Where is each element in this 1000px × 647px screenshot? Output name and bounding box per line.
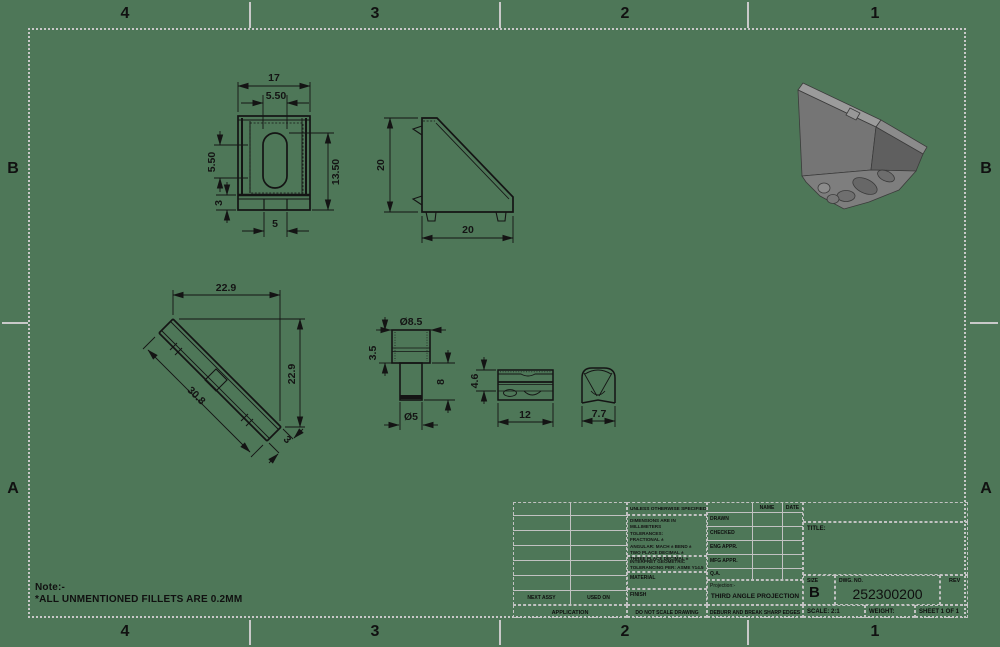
- block-view: 4.6 12: [469, 357, 553, 427]
- rev-cell: REV: [940, 575, 968, 605]
- do-not-scale-label: DO NOT SCALE DRAWING: [628, 610, 706, 616]
- tolerance-cell: DIMENSIONS ARE IN MILLIMETERS TOLERANCES…: [627, 515, 707, 556]
- sheet-cell: SHEET 1 OF 1: [915, 605, 968, 618]
- application-label: APPLICATION: [514, 610, 626, 616]
- interpret-cell: INTERPRET GEOMETRIC TOLERANCING PER: ASM…: [627, 556, 707, 572]
- note-line-1: Note:-: [35, 582, 242, 594]
- svg-text:30.8: 30.8: [185, 384, 208, 407]
- svg-text:3.5: 3.5: [367, 346, 379, 361]
- name-column-header: NAME: [752, 505, 782, 511]
- svg-text:Ø5: Ø5: [404, 411, 418, 423]
- dim-front-height: [289, 133, 334, 210]
- svg-text:22.9: 22.9: [216, 282, 237, 294]
- projection-label: Projection:-: [710, 583, 735, 589]
- finish-cell: FINISH: [627, 589, 707, 605]
- svg-text:4.6: 4.6: [469, 374, 481, 389]
- dim-pin-head-height: [379, 317, 392, 376]
- svg-text:17: 17: [268, 72, 280, 84]
- svg-text:3: 3: [281, 434, 294, 447]
- iso-view: [798, 83, 927, 209]
- svg-text:7.7: 7.7: [592, 408, 607, 420]
- svg-text:20: 20: [462, 224, 474, 236]
- svg-text:5.50: 5.50: [266, 90, 287, 102]
- dwg-no-label: DWG. NO.: [839, 578, 863, 584]
- unless-otherwise-cell: UNLESS OTHERWISE SPECIFIED:: [627, 502, 707, 515]
- svg-text:5.50: 5.50: [206, 152, 218, 173]
- drawn-label: DRAWN: [710, 516, 729, 522]
- svg-text:5: 5: [272, 218, 278, 230]
- front-view: 17 5.50 5.50: [206, 72, 342, 237]
- deburr-cell: DEBURR AND BREAK SHARP EDGES: [707, 605, 803, 618]
- finish-label: FINISH: [630, 592, 646, 598]
- deburr-label: DEBURR AND BREAK SHARP EDGES: [708, 610, 802, 616]
- next-assy-label: NEXT ASSY: [513, 595, 570, 601]
- qa-label: Q.A.: [710, 571, 720, 577]
- date-column-header: DATE: [782, 505, 803, 511]
- unless-otherwise-label: UNLESS OTHERWISE SPECIFIED:: [630, 507, 708, 512]
- note-line-2: *ALL UNMENTIONED FILLETS ARE 0.2MM: [35, 594, 242, 606]
- dwg-no-cell: DWG. NO. 252300200: [835, 575, 940, 605]
- size-cell: SIZE B: [803, 575, 835, 605]
- svg-text:20: 20: [375, 159, 387, 171]
- title-block: NEXT ASSY USED ON APPLICATION UNLESS OTH…: [513, 502, 968, 618]
- svg-text:3: 3: [213, 200, 225, 206]
- svg-text:8: 8: [435, 379, 447, 385]
- dim-side-height: [384, 118, 418, 212]
- svg-text:12: 12: [519, 409, 531, 421]
- projection-cell: Projection:- THIRD ANGLE PROJECTION: [707, 580, 803, 605]
- svg-text:13.50: 13.50: [330, 159, 342, 185]
- interpret-value: ASME Y14.5: [677, 565, 703, 570]
- drawing-sheet: 4 3 2 1 4 3 2 1 B A B A: [0, 0, 1000, 647]
- sheet-note: Note:- *ALL UNMENTIONED FILLETS ARE 0.2M…: [35, 582, 242, 606]
- do-not-scale-cell: DO NOT SCALE DRAWING: [627, 605, 707, 618]
- scale-value: SCALE: 2:1: [807, 609, 840, 615]
- projection-value: THIRD ANGLE PROJECTION: [708, 593, 802, 600]
- used-on-label: USED ON: [570, 595, 627, 601]
- dwg-no-value: 252300200: [836, 586, 939, 602]
- svg-text:Ø8.5: Ø8.5: [400, 316, 423, 328]
- scale-cell: SCALE: 2:1: [803, 605, 865, 618]
- material-label: MATERIAL: [630, 575, 655, 581]
- material-cell: MATERIAL: [627, 572, 707, 589]
- plan-view: 22.9 22.9 30.8 3: [143, 282, 305, 463]
- interpret-line-2: TOLERANCING PER:: [630, 565, 676, 570]
- checked-label: CHECKED: [710, 530, 735, 536]
- size-value: B: [809, 584, 820, 601]
- clip-view: 7.7: [582, 368, 615, 427]
- side-view: 20 20: [375, 118, 513, 243]
- tolerance-line: DIMENSIONS ARE IN MILLIMETERS: [630, 518, 704, 531]
- title-label: TITLE:: [807, 526, 826, 532]
- rev-label: REV: [949, 578, 960, 584]
- application-cell: APPLICATION: [513, 605, 627, 618]
- pin-view: Ø8.5 3.5 8: [367, 316, 455, 430]
- weight-label: WEIGHT:: [869, 609, 894, 615]
- mfg-appr-label: MFG APPR.: [710, 558, 738, 564]
- title-cell: TITLE:: [803, 522, 968, 575]
- sheet-value: SHEET 1 OF 1: [919, 609, 959, 615]
- eng-appr-label: ENG APPR.: [710, 544, 737, 550]
- weight-cell: WEIGHT:: [865, 605, 915, 618]
- svg-text:22.9: 22.9: [286, 364, 298, 385]
- revision-strip: [803, 502, 968, 522]
